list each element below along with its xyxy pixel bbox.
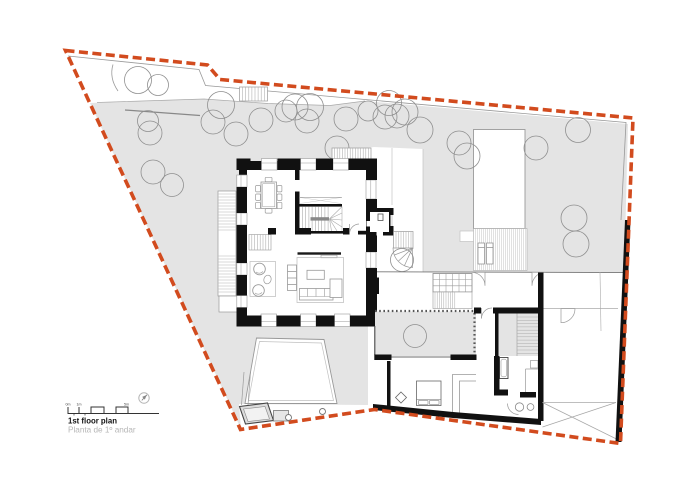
svg-text:5m: 5m	[124, 403, 129, 407]
svg-text:0m: 0m	[66, 403, 71, 407]
svg-text:1st floor plan: 1st floor plan	[68, 417, 117, 426]
svg-text:1m: 1m	[77, 403, 82, 407]
svg-text:Planta de 1º andar: Planta de 1º andar	[68, 426, 136, 435]
